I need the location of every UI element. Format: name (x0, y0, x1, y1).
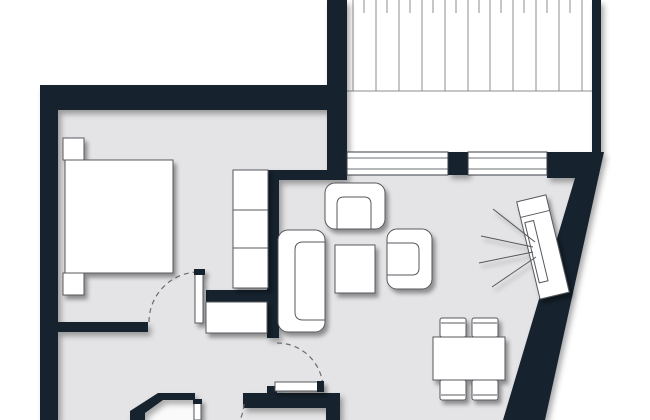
bedroom-door (194, 269, 205, 323)
window-pillar (448, 152, 468, 175)
nightstand-top (63, 138, 84, 160)
armchair-top (325, 183, 385, 229)
dining-chair-3 (440, 380, 466, 400)
terrace-left-wall (327, 0, 347, 180)
dining-table (433, 337, 505, 380)
floor-plan-canvas (0, 0, 650, 420)
bathroom-door-frame (193, 399, 202, 404)
armchair-right-body (387, 229, 432, 289)
bedroom-door-frame (194, 269, 205, 275)
floor-plan-svg (0, 0, 650, 420)
sofa (278, 230, 325, 332)
window-right-pane (468, 152, 547, 175)
kitchen-door-leaf (275, 382, 322, 391)
bathroom-door-leaf (194, 402, 201, 420)
bedroom-east-wall (267, 170, 279, 338)
kitchen-wall (243, 393, 340, 408)
left-exterior-wall (40, 85, 58, 420)
kitchen-door (275, 381, 324, 392)
kitchen-door-frame (317, 381, 324, 392)
bedroom-door-leaf (195, 273, 203, 323)
armchair-top-body (325, 183, 385, 229)
armchair-right (387, 229, 432, 289)
double-bed (65, 160, 173, 273)
coffee-table (335, 245, 375, 293)
dining-chair-4 (472, 380, 498, 400)
kitchen-wall-corner (326, 408, 340, 420)
wardrobe (233, 170, 268, 288)
window-band (347, 152, 547, 175)
dining-chair-2 (472, 318, 498, 337)
terrace-right-wall (592, 0, 601, 152)
wardrobe-body (233, 170, 268, 288)
bathroom-door (193, 399, 202, 420)
window-left-pane (347, 152, 448, 175)
bedroom-south-wall (58, 322, 148, 332)
closet-nook-wall (206, 290, 279, 302)
sofa-body (278, 230, 325, 332)
hall-closet (206, 302, 267, 333)
top-exterior-wall (40, 85, 347, 110)
terrace-decking (343, 0, 594, 152)
dining-chair-1 (440, 318, 466, 337)
nightstand-bottom (63, 273, 84, 295)
